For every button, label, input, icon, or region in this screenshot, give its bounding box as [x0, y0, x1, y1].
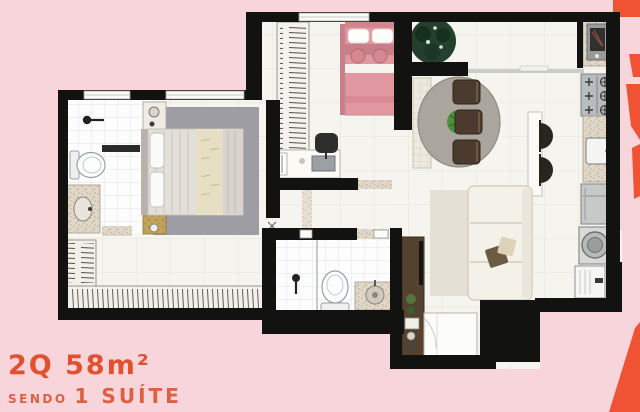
sofa	[468, 186, 532, 300]
bath-threshold	[102, 226, 132, 236]
subtitle-prefix: SENDO	[8, 392, 68, 406]
toilet	[70, 151, 105, 179]
toilet-2	[321, 271, 349, 311]
single-bed	[340, 20, 397, 115]
subtitle-main: 1 SUÍTE	[75, 384, 182, 408]
plan-subtitle: SENDO 1 SUÍTE	[8, 384, 182, 408]
pillow	[150, 172, 164, 207]
vent-bath2-b	[374, 230, 388, 238]
nightstand-top	[143, 102, 166, 130]
accent-wedge-bottom	[609, 322, 640, 412]
door-threshold	[356, 180, 392, 189]
laptop	[312, 156, 335, 171]
laundry-tank	[575, 266, 605, 298]
plan-caption: 2Q 58m² SENDO 1 SUÍTE	[8, 350, 182, 408]
desk	[270, 150, 340, 178]
floorplan-canvas: 2Q 58m² SENDO 1 SUÍTE	[0, 0, 640, 412]
double-bed	[141, 129, 243, 215]
tv	[419, 241, 423, 285]
pillow	[150, 133, 164, 168]
pillow	[372, 29, 393, 43]
accent-strip-1	[629, 54, 640, 77]
entry-door	[424, 313, 477, 358]
accent-strip-3	[632, 144, 640, 199]
plant-large	[410, 18, 456, 64]
hall-transition-strip	[302, 190, 312, 228]
plan-title: 2Q 58m²	[8, 350, 182, 381]
tv-panel	[402, 237, 424, 357]
accent-strip-2	[626, 84, 640, 140]
vent-bath2	[300, 230, 312, 238]
wardrobe-2	[277, 22, 309, 158]
pillow	[348, 29, 369, 43]
wardrobe-corner	[66, 240, 96, 286]
dining-chairs	[453, 80, 482, 164]
vanity-sink	[66, 185, 100, 233]
